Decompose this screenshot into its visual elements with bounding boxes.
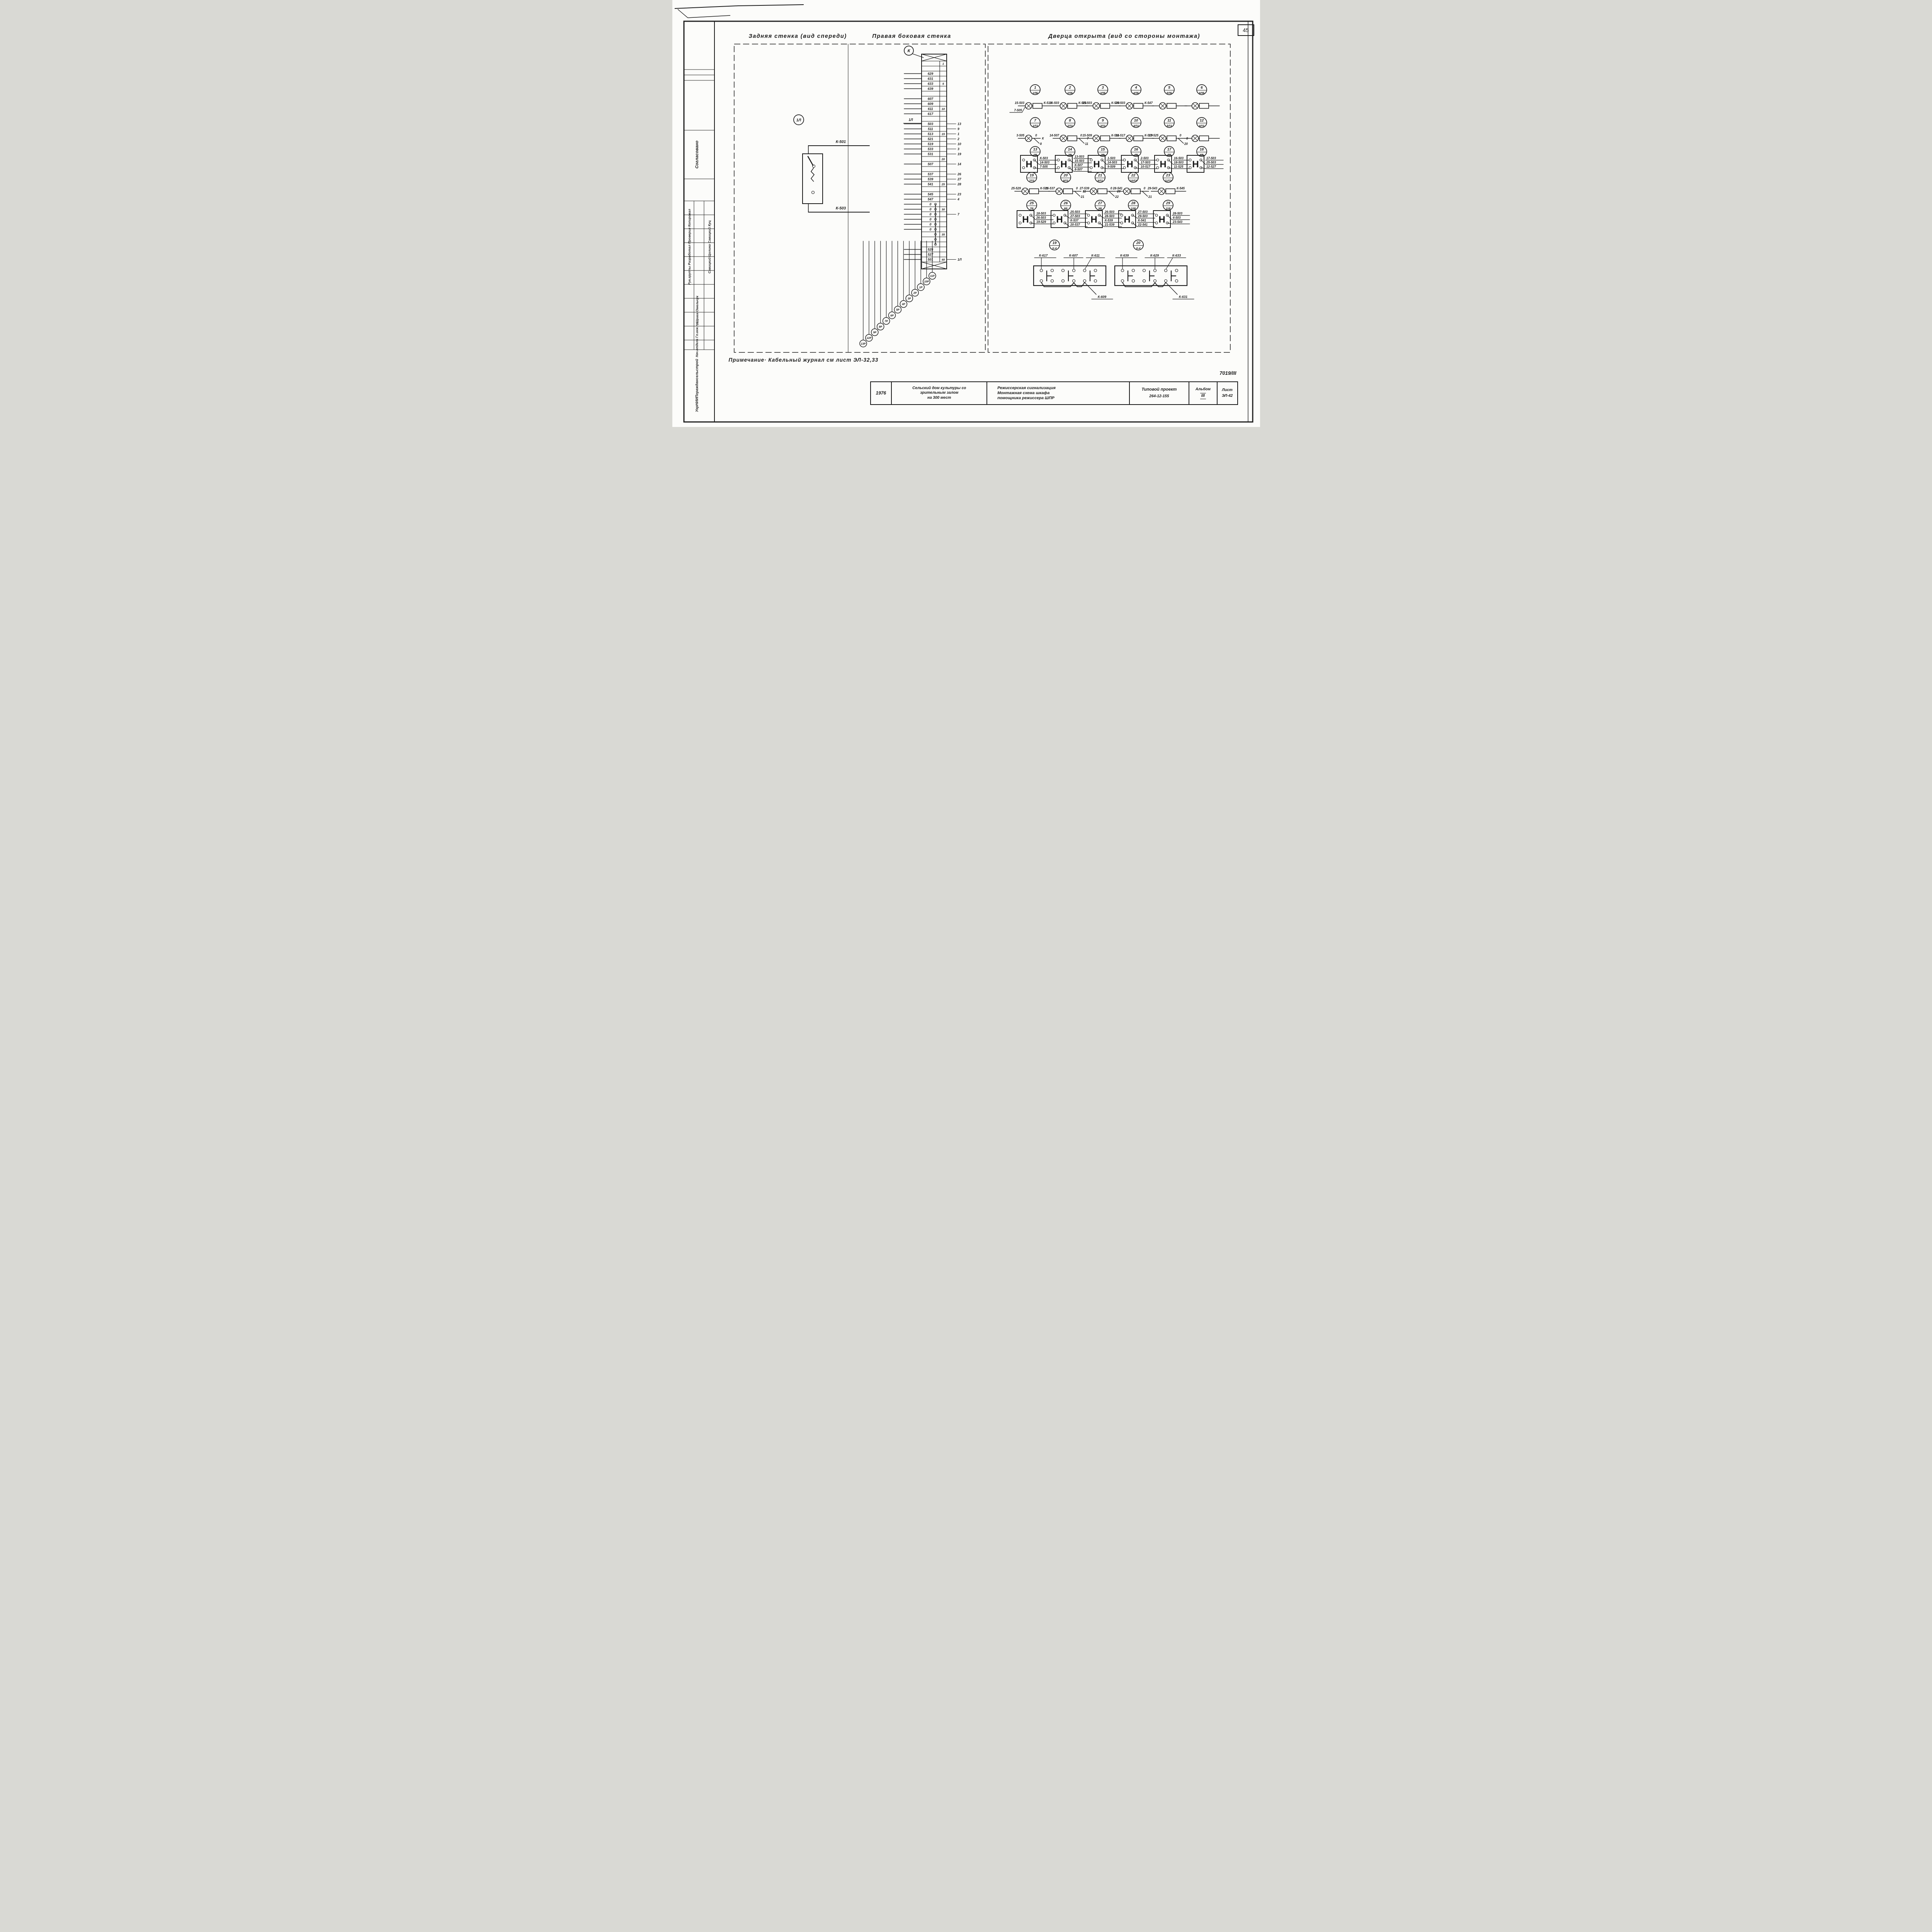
h-block-wire-label: 2-503	[1140, 156, 1149, 160]
indicator-code: 1ЛБ	[1032, 91, 1037, 95]
branch-label-bottom: 11	[1085, 142, 1088, 146]
hole-icon	[1143, 269, 1145, 272]
indicator-number: 6	[1201, 86, 1203, 90]
breaker-fuse	[811, 168, 814, 182]
indicator-code: 6ЛЗ	[1199, 124, 1204, 128]
h-block-wire-label: 4-503	[1172, 216, 1181, 219]
h-block-wire-label: 22-541	[1138, 223, 1148, 226]
terminal-label: 507	[927, 162, 933, 166]
hole-icon	[1083, 280, 1086, 282]
h-letter: Н	[1093, 159, 1100, 170]
cable-tag: 7Р	[884, 320, 888, 323]
branch-label-top: 0	[1110, 187, 1112, 190]
hole-icon	[1072, 280, 1075, 282]
cable-tag: 12Р	[866, 337, 871, 340]
stamp-roles: Рук.группы Разработал Проверил Копировал	[687, 197, 691, 297]
connector-wire-label: К-611	[1091, 253, 1100, 257]
terminal-tick-label: 3	[957, 147, 959, 151]
wire	[1099, 215, 1104, 218]
terminal-index: 40	[941, 258, 945, 262]
wire-label-pre: 26-537	[1045, 187, 1055, 190]
terminal-tick-label: 19	[957, 152, 961, 156]
h-letter: Н	[1126, 159, 1133, 170]
indicator-number: 5	[1168, 86, 1170, 90]
h-block-wire-label: 28-503	[1172, 212, 1182, 215]
connector-wire-label: К-629	[1150, 253, 1159, 257]
cable-tag: 2Р	[913, 292, 917, 294]
h-block-wire-label: 27-503	[1138, 210, 1148, 214]
connector-wire-label: К-617	[1039, 253, 1048, 257]
h-block-wire-label: 12-527	[1206, 165, 1216, 168]
connector-wire-label: К-607	[1069, 253, 1078, 257]
hole-icon	[1094, 269, 1097, 272]
indicator-code: 6В	[1200, 153, 1203, 156]
hole-icon	[1156, 159, 1159, 161]
indicator-code: 7В	[1030, 207, 1033, 210]
wire-label-pre: 16-503	[1049, 101, 1059, 105]
hole-icon	[1164, 269, 1167, 272]
indicator-code: 1В	[1033, 153, 1037, 156]
terminal-label: 607	[927, 97, 933, 101]
object-line: Сельский дом культуры со	[912, 386, 966, 391]
hole-icon	[1175, 269, 1178, 272]
terminal-index: 30	[941, 208, 945, 211]
terminal-tick-label: 23	[957, 192, 961, 196]
indicator-number: 22	[1131, 173, 1135, 178]
h-block-wire-label: 10-517	[1141, 165, 1150, 168]
hole-icon	[1121, 214, 1123, 216]
indicator-code: 5В	[1167, 153, 1171, 156]
indicator-number: 11	[1167, 119, 1171, 123]
wire-label-pre: 15-503	[1015, 101, 1024, 105]
branch-label-top: 0	[1080, 134, 1082, 137]
hole-icon	[1123, 159, 1126, 161]
terminal-label: 539	[927, 177, 933, 181]
hole-icon	[1087, 222, 1090, 224]
torn-edge	[675, 5, 804, 9]
terminal-label: 513	[927, 132, 933, 136]
h-block-wire-label: 25-503	[1206, 161, 1216, 164]
hole-icon	[1061, 269, 1064, 272]
hole-icon	[1040, 280, 1043, 282]
cable-tag: 5Р	[896, 309, 900, 311]
breaker-box	[803, 154, 823, 204]
terminal-index: 1	[942, 62, 944, 66]
terminal-tick-label: 13	[957, 122, 961, 126]
panel-door	[988, 44, 1230, 352]
hole-icon	[1019, 222, 1021, 224]
section-title-side-wall: Правая боковая стенка	[852, 33, 972, 39]
indicator-code: 1ЛЗ	[1032, 124, 1038, 128]
branch-label-top: 0	[1076, 187, 1078, 190]
cable-tag: 13Р	[861, 343, 866, 345]
section-title-door: Дверца открыта (вид со стороны монтажа)	[1009, 33, 1240, 39]
indicator-number: 15	[1100, 148, 1105, 152]
terminal-label: 617	[927, 112, 933, 116]
resistor-box	[1131, 189, 1140, 194]
terminal-label: 541	[927, 182, 933, 186]
indicator-number: 25	[1029, 201, 1034, 206]
indicator-code: 7ЛЗ	[1029, 179, 1034, 182]
h-block-wire-label: 20-537	[1070, 223, 1080, 226]
wire-label-pre: 3-505	[1016, 134, 1024, 137]
drawing-line: Режиссерская сигнализация	[997, 386, 1056, 391]
stamp-names: Савицкий Цолина Савицкий Куц	[707, 197, 711, 297]
hole-icon	[1019, 214, 1021, 216]
connector-wire-label: К-633	[1172, 253, 1181, 257]
wire	[1133, 215, 1137, 218]
terminal-index: 20	[941, 158, 945, 161]
terminal-label: 633	[927, 82, 933, 86]
title-block: 1976 Сельский дом культуры со зрительным…	[870, 381, 1238, 405]
wire-label-pre2: 7-505	[1014, 109, 1022, 112]
connector-jumper	[1041, 282, 1085, 287]
album-number: III	[1200, 393, 1206, 399]
cable-tag: 9Р	[873, 332, 876, 334]
object-line: на 300 мест	[927, 396, 951, 401]
h-block-wire-label: 17-503	[1206, 156, 1216, 160]
hole-icon	[1189, 167, 1191, 169]
wire-label-pre: 25-503	[1082, 101, 1092, 105]
terminal-label: 609	[927, 102, 933, 106]
indicator-number: 13	[1033, 148, 1037, 152]
wire	[1133, 223, 1137, 227]
terminal-tick-label: 7	[957, 213, 960, 216]
breaker-blade	[808, 156, 813, 165]
wire	[1135, 160, 1140, 165]
branch-label-top: 0	[1179, 134, 1181, 137]
h-block-wire-label: К-539	[1105, 219, 1113, 222]
h-block-wire-label: 16-503	[1174, 156, 1184, 160]
terminal-label: 545	[927, 192, 933, 196]
h-block-wire-label: 21-539	[1104, 223, 1114, 226]
resistor-box	[1166, 189, 1175, 194]
wire	[1167, 215, 1172, 220]
wire-label-pre: 15-509	[1082, 134, 1092, 137]
wire	[1102, 160, 1107, 165]
h-block-wire-label: 28-503	[1104, 214, 1114, 218]
connector-wire-label: К-609	[1097, 295, 1106, 299]
title-block-object: Сельский дом культуры со зрительным зало…	[891, 382, 986, 404]
indicator-number: 12	[1199, 119, 1204, 123]
indicator-code: 9ЛЗ	[1097, 179, 1103, 182]
wire-label-k503: К-503	[835, 206, 846, 211]
wire	[1065, 223, 1070, 227]
connector-wire-label: К-631	[1179, 295, 1187, 299]
branch-label-top: 0	[1035, 134, 1037, 137]
terminal-label: 527	[927, 253, 933, 257]
indicator-code: 5ЛЗ	[1167, 124, 1172, 128]
terminal-tick-label: 10	[957, 142, 961, 146]
h-block-wire-label: 26-503	[1036, 216, 1046, 219]
hole-icon	[1083, 269, 1086, 272]
wire-label-post: К-547	[1145, 101, 1153, 105]
h-block-wire-label: 27-503	[1070, 214, 1080, 218]
indicator-code: 3ЛЗ	[1100, 124, 1105, 128]
terminal-index: 25	[941, 183, 945, 186]
wire-label-k501: К-501	[835, 140, 846, 144]
indicator-code: 6ЛБ	[1199, 91, 1204, 95]
hole-icon	[1132, 280, 1134, 282]
h-block-wire-label: К-541	[1138, 219, 1146, 222]
h-block-wire-label: 17-503	[1141, 161, 1150, 164]
h-letter: Н	[1160, 159, 1166, 170]
indicator-code: 5ЛБ	[1166, 91, 1172, 95]
terminal-label: 511	[928, 127, 933, 131]
terminal-label: 629	[927, 72, 933, 76]
hole-icon	[811, 191, 814, 194]
terminal-tick-label: 27	[957, 177, 962, 181]
h-block-wire-label: 18-503	[1174, 161, 1184, 164]
h-letter: Н	[1026, 159, 1032, 170]
wire	[1085, 258, 1092, 269]
wire-label-pre: 16-517	[1116, 134, 1125, 137]
branch-label-mid: К	[1042, 137, 1044, 140]
terminal-index: 15	[941, 133, 945, 136]
sheet-label: Лист	[1222, 388, 1232, 393]
project-label: Типовой проект	[1141, 387, 1177, 393]
wire	[1085, 282, 1096, 294]
h-block-wire-label: 23-543	[1172, 220, 1182, 224]
wire	[1022, 107, 1025, 112]
wire	[1168, 160, 1173, 165]
cable-tag: 4Р	[901, 303, 905, 306]
h-block-wire-label: 26-503	[1104, 210, 1114, 214]
doc-code: 7019/III	[1186, 370, 1236, 376]
hole-icon	[1123, 167, 1126, 169]
wire	[1065, 215, 1070, 218]
wire-label-pre: 25-529	[1011, 187, 1021, 190]
branch-wire	[1109, 191, 1114, 196]
terminal-label: 0	[929, 202, 931, 206]
note-text: Примечание· Кабельный журнал см лист ЭЛ-…	[729, 357, 879, 363]
resistor-box	[1063, 189, 1073, 194]
wire	[1069, 168, 1074, 172]
cable-tag: 11Р	[930, 275, 934, 278]
stamp-organization: УкрНИИПграждансельстрой	[695, 351, 699, 420]
resistor-box	[1100, 104, 1110, 109]
wire	[1099, 223, 1104, 227]
indicator-number: 7	[1034, 119, 1036, 123]
terminal-tick-label: 28	[957, 182, 961, 186]
hole-icon	[1121, 280, 1124, 282]
resistor-box	[1134, 136, 1143, 141]
title-block-drawing-name: Режиссерская сигнализация Монтажная схем…	[986, 382, 1129, 404]
sheet-number: ЭЛ-42	[1222, 394, 1233, 399]
hole-icon	[1040, 269, 1043, 272]
terminal-label: 0	[929, 213, 931, 216]
terminal-tick-label: 1Л	[957, 258, 962, 262]
indicator-code: К-4	[1052, 247, 1056, 250]
wire-label-pre: 29-543	[1147, 187, 1157, 190]
resistor-box	[1199, 136, 1209, 141]
resistor-box	[1029, 189, 1039, 194]
h-letter: Н	[1124, 214, 1130, 225]
panel-back-and-side	[734, 44, 985, 352]
hole-icon	[1175, 280, 1178, 282]
indicator-number: 17	[1167, 148, 1171, 152]
connector-wire-label: К-639	[1120, 253, 1129, 257]
terminal-label: 531	[927, 152, 933, 156]
resistor-box	[1068, 104, 1077, 109]
hole-icon	[1061, 280, 1064, 282]
hole-icon	[1156, 167, 1159, 169]
wire-label-post: К-545	[1177, 187, 1185, 190]
indicator-number: 20	[1136, 241, 1140, 245]
h-letter: Н	[1060, 159, 1067, 170]
album-label: Альбом	[1196, 387, 1211, 392]
terminal-label: 639	[927, 87, 933, 91]
indicator-code: 4ЛБ	[1133, 91, 1138, 95]
h-block-wire-label: 1-503	[1107, 156, 1116, 160]
indicator-number: 19	[1029, 173, 1034, 178]
cable-tag: 6Р	[890, 315, 894, 317]
drawing-line: помощника режиссера ШПР	[997, 396, 1054, 401]
indicator-code: 8ЛЗ	[1063, 179, 1068, 182]
indicator-number: 16	[1134, 148, 1138, 152]
wire	[1069, 160, 1074, 163]
h-block-wire-label: 11-525	[1174, 165, 1184, 168]
torn-edge	[678, 9, 730, 18]
indicator-code: 10В	[1131, 207, 1136, 210]
indicator-number: 2	[1068, 86, 1071, 90]
hole-icon	[1090, 167, 1092, 169]
branch-label-bottom: 8	[1040, 142, 1042, 146]
schematic-canvas: 1ЛК-501К-503К162963163356396076096111061…	[672, 0, 1260, 427]
indicator-number: 3	[1102, 86, 1104, 90]
connector-jumper	[1122, 282, 1166, 287]
h-block-wire-label: 9-509	[1107, 165, 1116, 168]
branch-label-bottom: 21	[1080, 195, 1084, 199]
resistor-box	[1167, 136, 1176, 141]
h-block-wire-label: К-503	[1040, 156, 1048, 160]
section-title-back-wall: Задняя стенка (вид спереди)	[734, 33, 862, 39]
hole-icon	[1121, 269, 1124, 272]
terminal-label: 0	[929, 223, 931, 226]
h-block-wire-label: 19-529	[1036, 220, 1046, 224]
connector-circle-label: К	[907, 49, 910, 53]
terminal-label: 533	[927, 147, 933, 151]
hole-icon	[1121, 222, 1123, 224]
terminal-label: 503	[927, 122, 933, 126]
resistor-box	[1033, 104, 1042, 109]
hole-icon	[1155, 214, 1158, 216]
indicator-number: 20	[1063, 173, 1068, 178]
branch-label-bottom: 20	[1184, 142, 1188, 146]
hole-icon	[1072, 269, 1075, 272]
h-letter: Н	[1158, 214, 1165, 225]
branch-wire	[1079, 138, 1084, 143]
indicator-code: 10ЛЗ	[1130, 179, 1137, 182]
h-block-wire-label: 18-503	[1036, 212, 1046, 215]
wire-label-pre: 14-507	[1049, 134, 1059, 137]
h-letter: Н	[1056, 214, 1063, 225]
project-number: 264-12-155	[1149, 394, 1169, 399]
resistor-box	[1167, 104, 1176, 109]
drawing-sheet: 1ЛК-501К-503К162963163356396076096111061…	[672, 0, 1260, 427]
hole-icon	[1057, 159, 1060, 161]
indicator-number: 10	[1134, 119, 1138, 123]
terminal-label: 0	[929, 228, 931, 231]
feeder-circle-label: 1Л	[796, 118, 801, 122]
indicator-code: 3ЛБ	[1100, 91, 1105, 95]
hole-icon	[1164, 280, 1167, 282]
drawing-line: Монтажная схема шкафа	[997, 391, 1049, 396]
indicator-number: 23	[1165, 173, 1170, 178]
h-block-wire-label: 14-503	[1107, 161, 1117, 164]
wire	[1201, 160, 1206, 165]
indicator-code: 11ЛЗ	[1165, 179, 1172, 182]
indicator-number: 27	[1097, 201, 1102, 206]
hole-icon	[1132, 269, 1134, 272]
wire-label-pre: 28-541	[1112, 187, 1122, 190]
hole-icon	[1189, 159, 1191, 161]
h-block-wire-label: 15-503	[1075, 159, 1084, 163]
terminal-tick-label: 2	[957, 137, 959, 141]
hole-icon	[1143, 280, 1145, 282]
stamp-agreed: Согласовано	[695, 130, 699, 179]
cable-tag: 1Р	[919, 286, 922, 289]
resistor-box	[1068, 136, 1077, 141]
branch-label-bottom: 21	[1148, 195, 1152, 199]
branch-label-top: 0	[1143, 187, 1145, 190]
terminal-tick-label: 26	[957, 172, 961, 176]
object-line: зрительным залом	[920, 391, 958, 396]
indicator-number: 1	[1034, 86, 1036, 90]
terminal-label: 611	[928, 107, 933, 111]
strip-feeder-label: 1Л	[908, 118, 913, 122]
terminal-label: 631	[927, 77, 933, 81]
indicator-code: К-4	[1136, 247, 1140, 250]
branch-label-bottom: 22	[1115, 195, 1119, 199]
terminal-index: 35	[941, 233, 945, 236]
h-letter: Н	[1022, 214, 1029, 225]
resistor-box	[1098, 189, 1107, 194]
hole-icon	[1153, 269, 1156, 272]
terminal-index: 5	[942, 82, 944, 86]
branch-wire	[1075, 191, 1080, 196]
hole-icon	[1057, 167, 1060, 169]
wire	[1031, 215, 1036, 220]
hole-icon	[1051, 269, 1053, 272]
h-block-wire-label: К-537	[1070, 219, 1078, 222]
wire	[1166, 282, 1177, 294]
terminal-tick-label: 1	[957, 132, 959, 136]
hole-icon	[1053, 214, 1055, 216]
hole-icon	[1090, 159, 1092, 161]
hole-icon	[1051, 280, 1053, 282]
indicator-code: 2В	[1068, 153, 1071, 156]
hole-icon	[1053, 222, 1055, 224]
indicator-code: 9В	[1098, 207, 1102, 210]
indicator-code: 4В	[1134, 153, 1138, 156]
terminal-tick-label: 4	[957, 197, 959, 201]
wire	[1166, 258, 1173, 269]
terminal-label: 537	[927, 172, 933, 176]
indicator-code: 4ЛЗ	[1133, 124, 1139, 128]
indicator-number: 9	[1102, 119, 1104, 123]
indicator-number: 26	[1063, 201, 1068, 206]
indicator-code: 3В	[1101, 153, 1104, 156]
h-block-wire-label: 14-503	[1040, 161, 1049, 164]
indicator-number: 28	[1131, 201, 1135, 206]
wire	[1034, 160, 1039, 165]
indicator-code: 11В	[1165, 207, 1170, 210]
cable-tag: 8Р	[879, 326, 882, 328]
h-block-wire-label: 13-503	[1075, 155, 1084, 158]
wire-label-pre: 29-503	[1115, 101, 1125, 105]
hole-icon	[1022, 167, 1025, 169]
